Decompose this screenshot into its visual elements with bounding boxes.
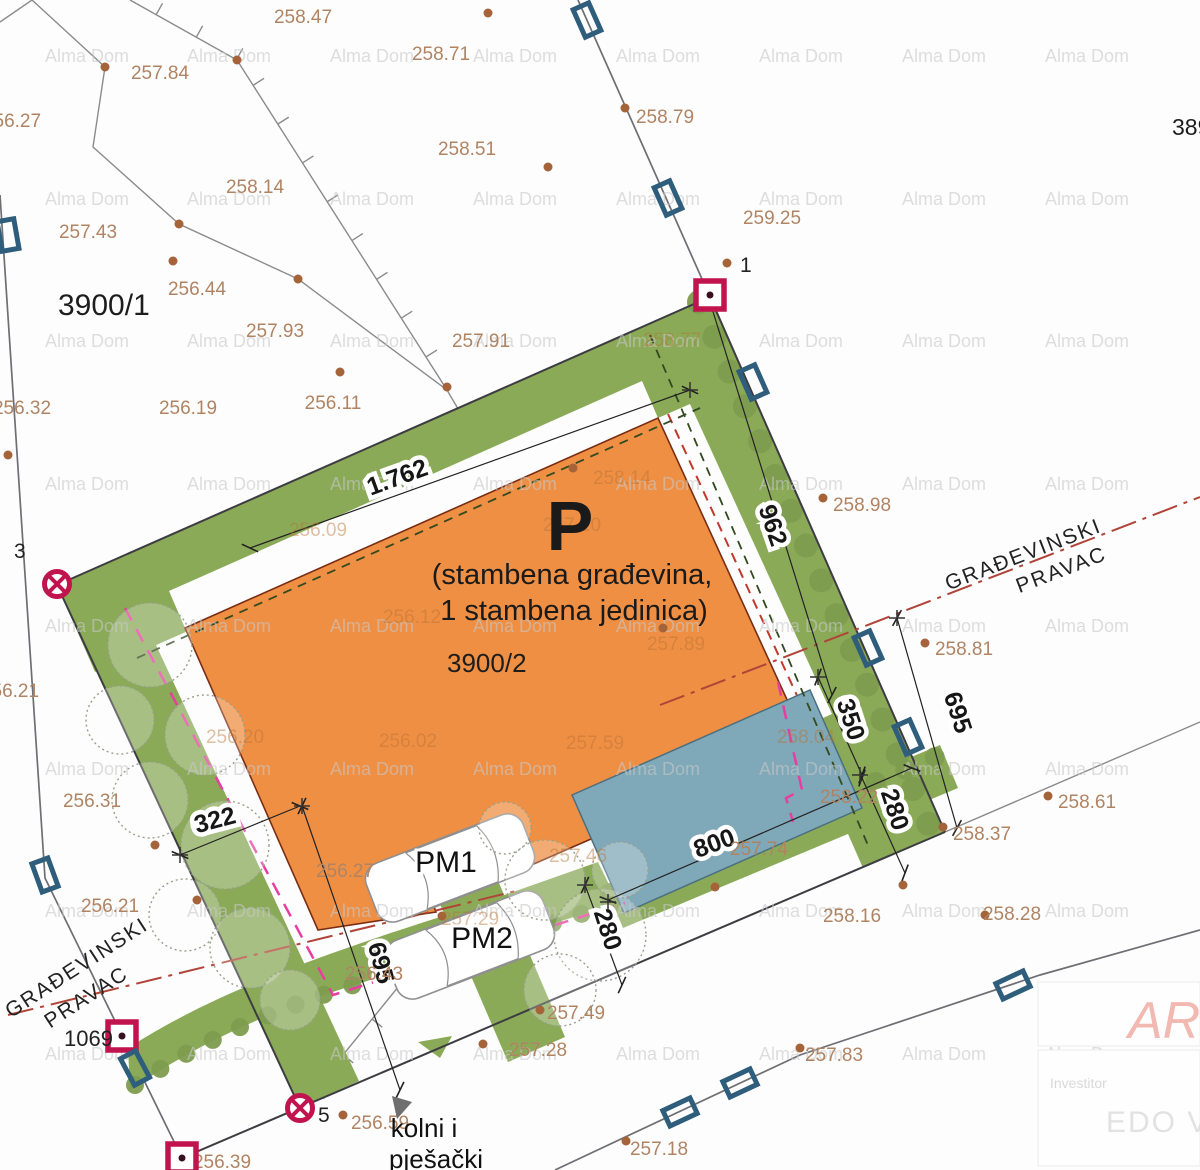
boundary-marker-dot (707, 292, 714, 299)
elevation-dot (796, 1044, 805, 1053)
watermark: Alma Dom (759, 46, 843, 66)
elevation-label: 256.12 (383, 607, 441, 628)
watermark: Alma Dom (187, 759, 271, 779)
watermark: Alma Dom (902, 901, 986, 921)
watermark: Alma Dom (759, 759, 843, 779)
elevation-label: 256.31 (63, 791, 121, 812)
elevation-label: 258.47 (274, 7, 332, 28)
elevation-label: 257.84 (131, 63, 190, 84)
survey-point-1-label: 1 (740, 254, 752, 277)
elevation-dot (819, 494, 828, 503)
watermark: Alma Dom (1045, 616, 1129, 636)
site-plan-drawing: Alma DomAlma DomAlma DomAlma DomAlma Dom… (0, 0, 1200, 1170)
elevation-label: 256.39 (193, 1152, 251, 1170)
elevation-label: 258.37 (953, 824, 1011, 845)
elevation-label: 257.89 (647, 634, 705, 655)
elevation-dot (151, 841, 160, 850)
parcel-label-3900-2: 3900/2 (447, 648, 527, 678)
dimension-end-tick (396, 1082, 404, 1098)
survey-tick (426, 350, 437, 357)
elevation-dot (294, 275, 303, 284)
elevation-label: 256.19 (159, 398, 217, 419)
elevation-label: 257.74 (730, 839, 789, 860)
elevation-label: 258.04 (777, 727, 836, 748)
boundary-marker-dot (119, 1033, 126, 1040)
watermark: Alma Dom (473, 759, 557, 779)
elevation-label: 257.83 (805, 1045, 863, 1066)
watermark: Alma Dom (1045, 759, 1129, 779)
watermark: Alma Dom (759, 616, 843, 636)
building-desc-line2: 1 stambena jedinica) (440, 595, 708, 627)
elevation-dot (621, 104, 630, 113)
elevation-dot (233, 56, 242, 65)
watermark: Alma Dom (330, 331, 414, 351)
watermark: Alma Dom (902, 189, 986, 209)
survey-point-3-label: 3 (14, 540, 26, 563)
elevation-label: 258.28 (983, 904, 1041, 925)
elevation-label: 257.18 (630, 1139, 688, 1160)
elevation-label: 258.22 (820, 787, 878, 808)
watermark: Alma Dom (187, 46, 271, 66)
elevation-label: 256.11 (305, 393, 362, 414)
elevation-dot (484, 9, 493, 18)
watermark: Alma Dom (902, 474, 986, 494)
building-mark: P (547, 487, 594, 565)
watermark: Alma Dom (330, 759, 414, 779)
elevation-label: 257.59 (566, 733, 624, 754)
watermark: Alma Dom (902, 331, 986, 351)
survey-tick (377, 272, 388, 279)
watermark: Alma Dom (759, 331, 843, 351)
watermark: Alma Dom (759, 189, 843, 209)
parking-label-pm1: PM1 (415, 846, 477, 879)
investor-name: EDO VAL (1106, 1106, 1200, 1139)
utility-marker (996, 971, 1030, 999)
access-label-line2: pješački (389, 1144, 483, 1170)
watermark: Alma Dom (759, 474, 843, 494)
elevation-label: 258.77 (643, 330, 701, 351)
elevation-label: 256.21 (81, 896, 139, 917)
elevation-label: 258.79 (636, 107, 694, 128)
elevation-dot (569, 464, 578, 473)
elevation-dot (939, 823, 948, 832)
elevation-label: 256.02 (379, 731, 437, 752)
elevation-dot (101, 63, 110, 72)
building-desc-line1: (stambena građevina, (432, 559, 713, 591)
watermark: Alma Dom (616, 46, 700, 66)
survey-tick (401, 311, 412, 318)
elevation-label: 256.27 (316, 861, 374, 882)
watermark: Alma Dom (616, 1044, 700, 1064)
watermark: Alma Dom (45, 189, 129, 209)
watermark: Alma Dom (45, 46, 129, 66)
elevation-dot (193, 896, 202, 905)
watermark: Alma Dom (902, 46, 986, 66)
survey-tick (253, 78, 264, 85)
investor-field-label: Investitor (1050, 1075, 1107, 1091)
elevation-dot (711, 883, 720, 892)
elevation-label: 258.71 (412, 44, 470, 65)
elevation-label: 257.93 (246, 321, 304, 342)
watermark: Alma Dom (45, 759, 129, 779)
elevation-dot (336, 368, 345, 377)
elevation-label: 258.98 (833, 495, 891, 516)
elevation-dot (169, 257, 178, 266)
elevation-label: 256.20 (206, 727, 264, 748)
survey-tick (352, 234, 363, 241)
elevation-label: 258.14 (593, 468, 652, 489)
survey-tick (302, 156, 313, 163)
survey-tick (196, 26, 202, 37)
site-plan-page: Alma DomAlma DomAlma DomAlma DomAlma Dom… (0, 0, 1200, 1170)
watermark: Alma Dom (1045, 189, 1129, 209)
watermark: Alma Dom (1045, 474, 1129, 494)
watermark: Alma Dom (45, 616, 129, 636)
elevation-label: 258.14 (226, 177, 285, 198)
boundary-marker-dot (179, 1155, 186, 1162)
watermark: Alma Dom (330, 46, 414, 66)
title-block: ARH Investitor EDO VAL (1038, 982, 1200, 1166)
elevation-label: 256.43 (345, 964, 403, 985)
watermark: Alma Dom (187, 1044, 271, 1064)
watermark: Alma Dom (902, 1044, 986, 1064)
elevation-label: 257.46 (549, 846, 607, 867)
parcel-label-389: 389 (1172, 114, 1200, 140)
parcel-label-3900-1: 3900/1 (58, 289, 150, 322)
watermark: Alma Dom (45, 474, 129, 494)
elevation-dot (443, 383, 452, 392)
watermark: Alma Dom (330, 1044, 414, 1064)
elevation-label: 256.44 (168, 279, 227, 300)
elevation-label: 258.61 (1058, 792, 1116, 813)
road-parcel-label: 1069 (64, 1026, 113, 1051)
survey-point-5-label: 5 (318, 1104, 330, 1127)
elevation-dot (544, 163, 553, 172)
elevation-label: 256.21 (0, 681, 39, 702)
watermark: Alma Dom (45, 331, 129, 351)
watermark: Alma Dom (1045, 901, 1129, 921)
elevation-dot (1044, 792, 1053, 801)
elevation-label: 258.81 (935, 639, 993, 660)
elevation-dot (723, 259, 732, 268)
elevation-label: 256.27 (0, 111, 41, 132)
watermark: Alma Dom (187, 616, 271, 636)
elevation-dot (479, 1040, 488, 1049)
elevation-label: 257.91 (452, 331, 510, 352)
watermark: Alma Dom (330, 901, 414, 921)
elevation-dot (175, 220, 184, 229)
street-line-northeast (578, 0, 710, 297)
elevation-dot (536, 1006, 545, 1015)
survey-tick (278, 117, 289, 124)
watermark: Alma Dom (902, 616, 986, 636)
elevation-label: 258.51 (438, 139, 496, 160)
elevation-label: 259.25 (743, 208, 801, 229)
elevation-label: 256.09 (289, 520, 347, 541)
watermark: Alma Dom (1045, 46, 1129, 66)
title-block-logo: ARH (1125, 992, 1200, 1050)
building-direction-label-east: GRAĐEVINSKI PRAVAC (942, 514, 1115, 621)
watermark: Alma Dom (187, 474, 271, 494)
elevation-label: 257.28 (509, 1040, 567, 1061)
watermark: Alma Dom (616, 759, 700, 779)
elevation-dot (339, 1111, 348, 1120)
elevation-dot (899, 881, 908, 890)
dimension-label: 695 (938, 688, 978, 736)
watermark: Alma Dom (473, 189, 557, 209)
elevation-dot (4, 451, 13, 460)
elevation-label: 258.16 (823, 906, 881, 927)
elevation-dot (921, 639, 930, 648)
parking-label-pm2: PM2 (451, 922, 513, 955)
watermark: Alma Dom (473, 46, 557, 66)
watermark: Alma Dom (187, 901, 271, 921)
elevation-label: 257.43 (59, 222, 117, 243)
survey-tick (156, 3, 162, 14)
boundary-line (0, 0, 32, 22)
elevation-label: 256.32 (0, 398, 51, 419)
watermark: Alma Dom (1045, 331, 1129, 351)
watermark: Alma Dom (330, 189, 414, 209)
watermark: Alma Dom (616, 901, 700, 921)
elevation-label: 257.49 (547, 1003, 605, 1024)
watermark: Alma Dom (473, 474, 557, 494)
access-label-line1: kolni i (391, 1113, 457, 1143)
